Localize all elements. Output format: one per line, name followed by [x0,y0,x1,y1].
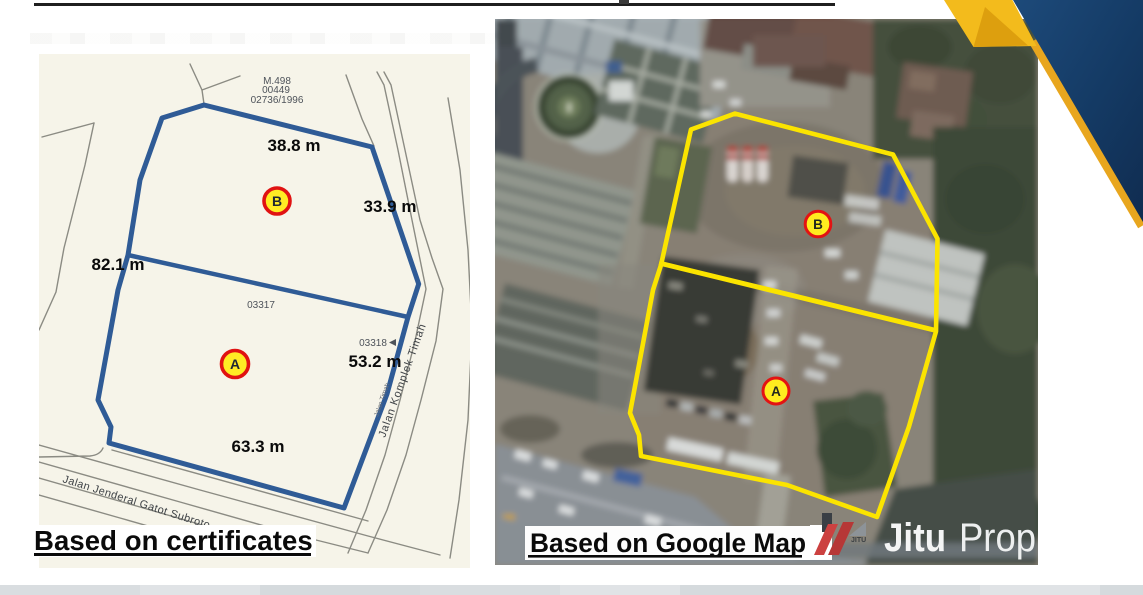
svg-text:Prop: Prop [959,516,1036,560]
svg-text:A: A [771,384,781,399]
svg-text:A: A [230,356,240,372]
svg-text:B: B [813,217,823,232]
svg-text:B: B [272,193,282,209]
svg-text:82.1 m: 82.1 m [92,255,145,274]
svg-text:Jitu: Jitu [884,516,946,560]
svg-text:02736/1996: 02736/1996 [251,95,304,106]
svg-text:53.2 m: 53.2 m [349,352,402,371]
svg-text:JITU: JITU [851,537,866,544]
svg-text:03318: 03318 [359,338,387,349]
svg-text:33.9 m: 33.9 m [364,197,417,216]
svg-text:Based on Google Map: Based on Google Map [530,528,806,558]
svg-text:63.3 m: 63.3 m [232,437,285,456]
svg-text:03317: 03317 [247,300,275,311]
svg-text:38.8 m: 38.8 m [268,136,321,155]
